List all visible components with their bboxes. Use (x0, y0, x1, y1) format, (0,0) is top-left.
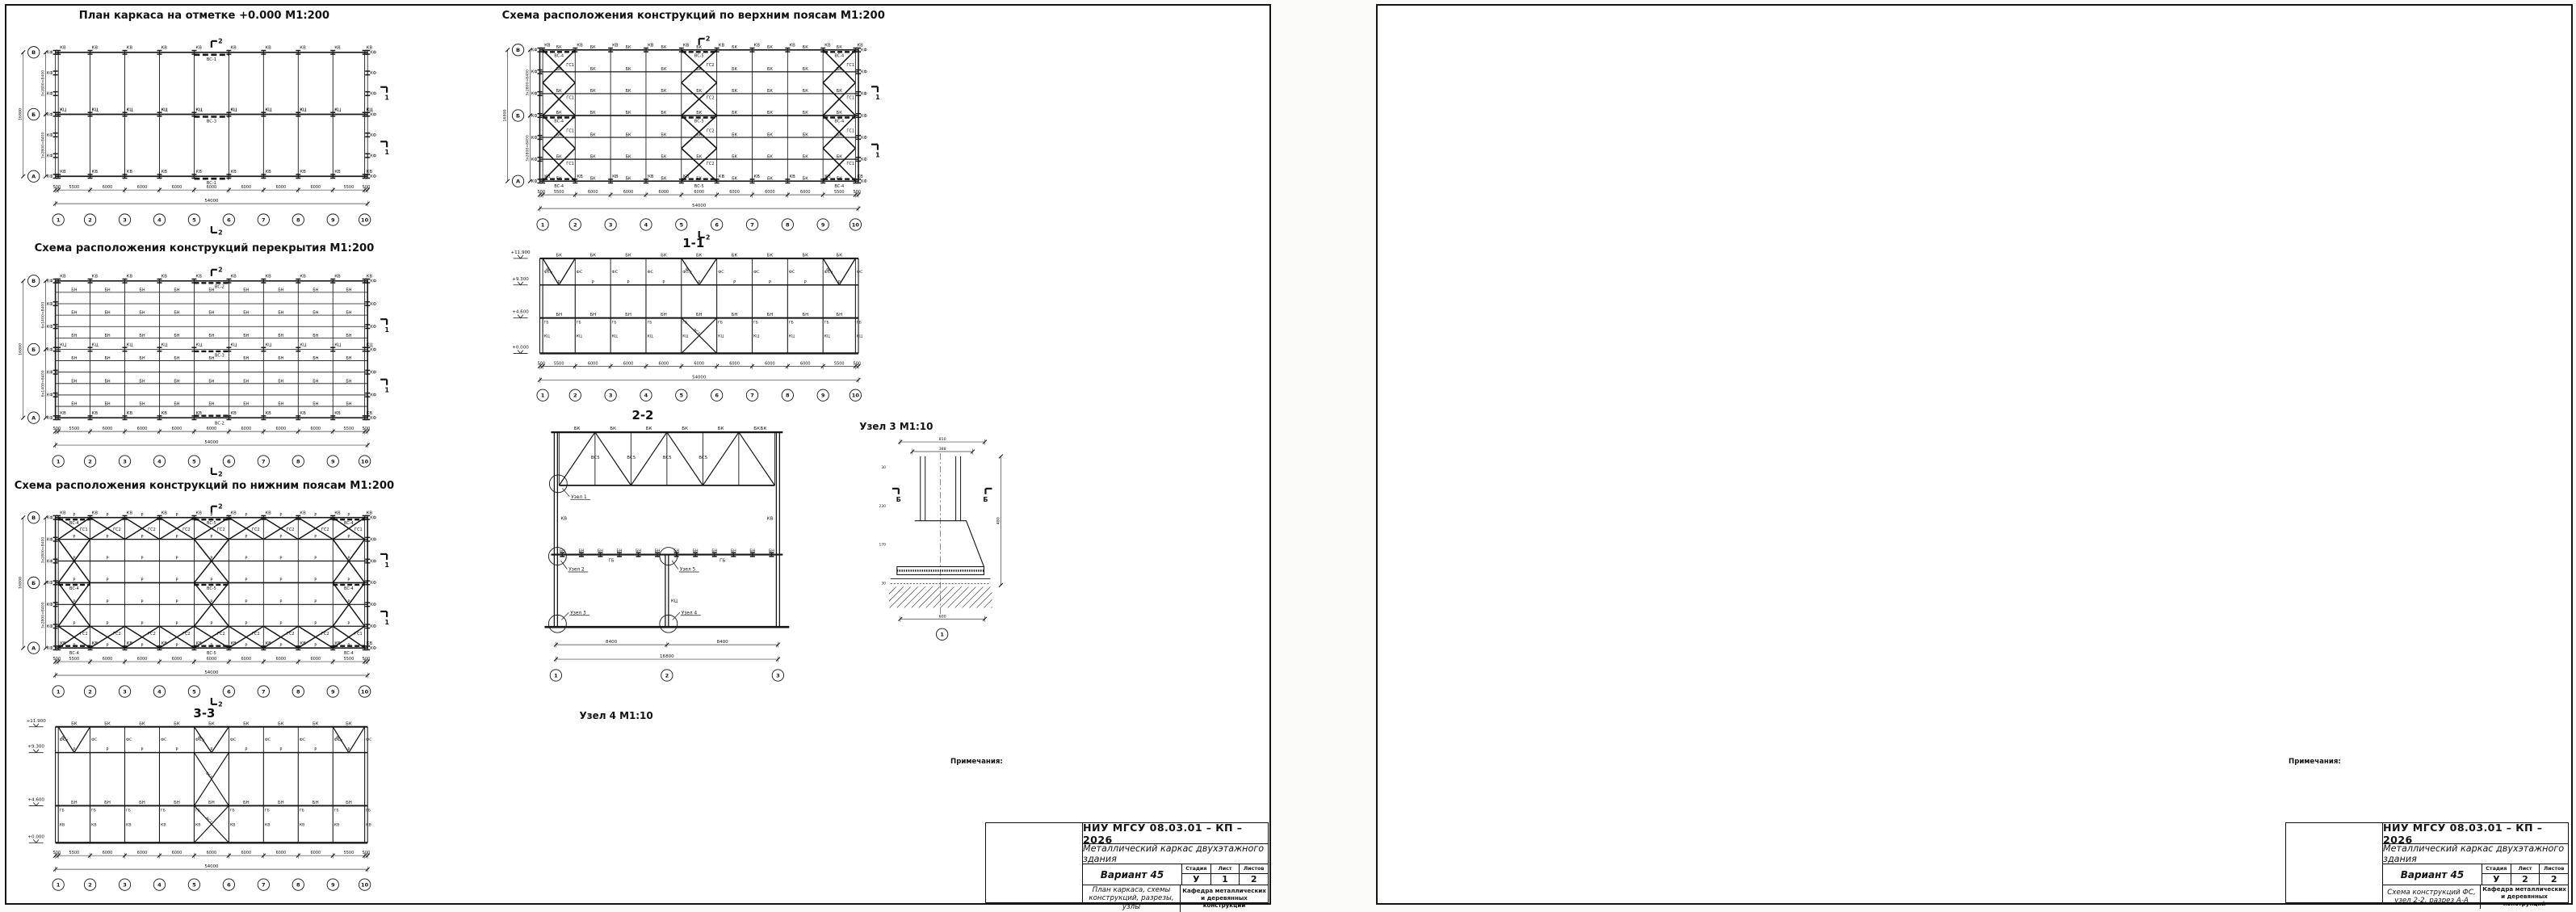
svg-text:Р: Р (245, 748, 247, 753)
svg-text:7: 7 (750, 393, 754, 399)
svg-text:БН: БН (278, 801, 284, 805)
svg-text:КЦ: КЦ (92, 343, 99, 347)
svg-text:3х2800=8400: 3х2800=8400 (41, 537, 46, 564)
svg-text:БН: БН (313, 379, 318, 384)
svg-text:БН: БН (243, 801, 250, 805)
svg-text:2: 2 (218, 37, 223, 44)
svg-text:1: 1 (384, 149, 389, 156)
svg-text:КВ: КВ (92, 46, 99, 51)
svg-text:КВ: КВ (648, 174, 654, 179)
svg-text:6000: 6000 (241, 851, 252, 855)
svg-text:КФ: КФ (47, 559, 53, 564)
project-title: Металлический каркас двухэтажного здания (1083, 844, 1268, 864)
svg-text:Р: Р (73, 578, 75, 583)
svg-text:КФ: КФ (370, 559, 376, 564)
svg-text:БН: БН (243, 379, 249, 384)
svg-text:10: 10 (361, 458, 369, 464)
svg-text:ГС1: ГС1 (566, 63, 574, 68)
svg-text:КФ: КФ (861, 70, 867, 75)
svg-text:КЦ: КЦ (334, 107, 341, 112)
svg-text:КФ: КФ (861, 92, 867, 97)
department-label: Кафедра металлических и деревянных конст… (2481, 885, 2568, 909)
svg-text:КЦ: КЦ (60, 343, 66, 347)
svg-text:КВ: КВ (195, 275, 202, 279)
svg-text:7: 7 (262, 881, 266, 888)
svg-text:6000: 6000 (241, 185, 252, 190)
svg-text:БК: БК (767, 89, 773, 94)
svg-text:ВС-4: ВС-4 (69, 586, 79, 591)
svg-text:Р: Р (175, 643, 178, 648)
svg-text:2: 2 (88, 216, 92, 223)
svg-text:Р: Р (733, 280, 736, 285)
svg-text:ГБ: ГБ (161, 808, 166, 813)
svg-text:КЦ: КЦ (300, 107, 306, 112)
svg-text:КВ: КВ (161, 511, 167, 516)
svg-text:БН: БН (208, 334, 214, 338)
svg-text:ФС: ФС (230, 738, 237, 742)
svg-text:Р: Р (279, 578, 282, 583)
svg-text:ВС-4: ВС-4 (834, 119, 844, 124)
svg-text:2: 2 (218, 700, 223, 708)
svg-text:КВ: КВ (230, 411, 237, 416)
svg-text:КЦ: КЦ (161, 343, 167, 347)
svg-text:КЦ: КЦ (265, 343, 271, 347)
svg-text:ГБ: ГБ (753, 321, 758, 326)
svg-text:ВС-4: ВС-4 (554, 53, 564, 58)
svg-text:БН: БН (278, 356, 283, 361)
svg-text:КВ: КВ (230, 275, 237, 279)
svg-text:КВ: КВ (60, 511, 66, 516)
svg-text:БК: БК (556, 89, 562, 94)
svg-text:6000: 6000 (172, 851, 183, 855)
svg-text:ГС2: ГС2 (252, 527, 260, 532)
svg-text:5500: 5500 (834, 190, 845, 195)
svg-text:БК: БК (556, 253, 562, 258)
svg-text:ГБ: ГБ (60, 808, 65, 813)
stage-value: У (2482, 874, 2511, 885)
page: { "page": {"background":"#fbfbfa","sheet… (0, 0, 2576, 910)
svg-text:БН: БН (208, 311, 214, 316)
svg-text:БК: БК (732, 132, 737, 137)
project-title: Металлический каркас двухэтажного здания (2383, 844, 2568, 864)
svg-text:БК: БК (590, 45, 596, 50)
svg-text:ГБ: ГБ (544, 321, 549, 326)
svg-text:БН: БН (104, 402, 110, 407)
svg-text:БК: БК (626, 132, 631, 137)
svg-text:Б: Б (31, 580, 36, 586)
svg-text:БК: БК (139, 721, 145, 726)
svg-text:БН: БН (104, 334, 110, 338)
svg-text:КФ: КФ (370, 581, 376, 586)
svg-text:КФ: КФ (370, 112, 376, 117)
svg-text:9: 9 (821, 221, 825, 228)
svg-text:3: 3 (123, 881, 127, 888)
svg-text:6х1400=8400: 6х1400=8400 (41, 370, 46, 397)
svg-text:500: 500 (363, 851, 370, 855)
svg-text:ВС5: ВС5 (663, 456, 672, 460)
svg-text:Р: Р (210, 535, 212, 540)
svg-text:6000: 6000 (729, 190, 740, 195)
svg-text:КВ: КВ (195, 170, 202, 174)
svg-text:Р: Р (314, 643, 317, 648)
svg-text:500: 500 (538, 190, 545, 195)
svg-text:ГС1: ГС1 (566, 96, 574, 101)
svg-text:БК: БК (767, 67, 773, 72)
svg-text:6000: 6000 (137, 657, 148, 662)
svg-text:Р: Р (73, 513, 75, 518)
svg-text:1: 1 (384, 95, 389, 102)
svg-text:Р: Р (662, 280, 665, 285)
svg-text:КФ: КФ (47, 279, 53, 284)
svg-text:Р: Р (141, 557, 143, 561)
svg-text:500: 500 (853, 190, 860, 195)
svg-text:БК: БК (625, 253, 631, 258)
svg-text:ГБ: ГБ (857, 321, 862, 326)
svg-text:ФС: ФС (577, 270, 583, 275)
svg-text:ГС2: ГС2 (113, 632, 121, 637)
svg-text:10: 10 (852, 393, 860, 399)
svg-text:БН: БН (578, 548, 584, 553)
svg-text:54000: 54000 (692, 375, 707, 380)
svg-text:БК: БК (590, 132, 596, 137)
svg-text:ФС: ФС (753, 270, 760, 275)
svg-text:БК: БК (661, 45, 666, 50)
svg-text:16800: 16800 (19, 343, 23, 355)
variant-label: Вариант 45 (1083, 864, 1182, 885)
svg-text:6: 6 (715, 221, 719, 228)
svg-text:500: 500 (363, 657, 370, 662)
svg-text:КВ: КВ (230, 511, 237, 516)
svg-text:БК: БК (761, 427, 767, 431)
svg-text:7: 7 (750, 221, 754, 228)
svg-text:БН: БН (208, 801, 215, 805)
svg-text:Схема расположения конструкций: Схема расположения конструкций по верхни… (502, 10, 885, 22)
svg-text:Р: Р (279, 513, 282, 518)
svg-text:Р: Р (314, 535, 317, 540)
svg-text:БК: БК (718, 427, 724, 431)
svg-text:КВ: КВ (334, 275, 341, 279)
svg-text:БК: БК (837, 89, 842, 94)
svg-text:Б: Б (516, 112, 520, 119)
svg-text:БН: БН (104, 288, 110, 292)
svg-text:КВ: КВ (92, 411, 99, 416)
svg-text:ВС-5: ВС-5 (694, 53, 704, 58)
svg-text:8: 8 (296, 458, 300, 464)
svg-text:КВ: КВ (195, 511, 202, 516)
svg-text:БН: БН (589, 313, 596, 317)
svg-text:БК: БК (803, 154, 808, 159)
svg-text:3: 3 (609, 221, 613, 228)
svg-text:Р: Р (210, 578, 212, 583)
svg-text:КВ: КВ (789, 174, 795, 179)
svg-text:БН: БН (636, 548, 641, 553)
svg-text:16800: 16800 (19, 577, 23, 589)
svg-text:Р: Р (279, 748, 282, 753)
svg-text:Р: Р (141, 600, 143, 605)
svg-text:6000: 6000 (310, 185, 321, 190)
svg-text:КВ: КВ (127, 46, 133, 51)
svg-text:БК: БК (837, 253, 843, 258)
svg-text:ФС: ФС (91, 738, 98, 742)
svg-text:ГБ: ГБ (720, 559, 725, 564)
svg-text:+11.900: +11.900 (510, 250, 531, 255)
svg-text:КФ: КФ (370, 370, 376, 375)
svg-text:Р: Р (347, 578, 350, 583)
svg-text:БН: БН (313, 288, 318, 292)
svg-text:Р: Р (347, 513, 350, 518)
svg-text:КВ: КВ (265, 46, 271, 51)
svg-text:ГС1: ГС1 (80, 527, 88, 532)
svg-text:БН: БН (208, 379, 214, 384)
svg-text:БК: БК (802, 253, 808, 258)
svg-text:КФ: КФ (370, 537, 376, 542)
svg-text:БН: БН (243, 311, 249, 316)
svg-text:КЦ: КЦ (857, 334, 862, 339)
svg-text:БН: БН (802, 313, 808, 317)
svg-text:810: 810 (939, 437, 946, 442)
svg-text:КФ: КФ (370, 279, 376, 284)
svg-text:БН: БН (243, 334, 249, 338)
svg-text:КВ: КВ (60, 46, 66, 51)
svg-text:КВ: КВ (334, 822, 340, 827)
svg-text:Р: Р (107, 643, 109, 648)
svg-text:КФ: КФ (861, 179, 867, 184)
svg-text:БК: БК (590, 176, 596, 181)
svg-text:6000: 6000 (623, 190, 634, 195)
svg-text:КФ: КФ (47, 416, 53, 421)
svg-text:БН: БН (208, 356, 214, 361)
svg-text:КВ: КВ (127, 275, 133, 279)
svg-text:Р: Р (175, 513, 178, 518)
svg-text:Р: Р (245, 621, 247, 626)
svg-text:БН: БН (104, 379, 110, 384)
svg-text:3х2800=8400: 3х2800=8400 (41, 70, 46, 97)
svg-text:КФ: КФ (370, 603, 376, 607)
svg-text:БН: БН (693, 548, 699, 553)
svg-text:9: 9 (331, 881, 335, 888)
svg-text:+4.600: +4.600 (512, 310, 529, 315)
svg-text:БК: БК (626, 176, 631, 181)
svg-text:6: 6 (227, 216, 231, 223)
svg-text:9: 9 (331, 688, 335, 695)
svg-text:БН: БН (104, 311, 110, 316)
svg-text:ГС2: ГС2 (707, 63, 715, 68)
svg-text:КЦ: КЦ (647, 334, 652, 339)
svg-text:БН: БН (732, 313, 738, 317)
svg-text:ГС2: ГС2 (707, 162, 715, 166)
svg-text:6000: 6000 (275, 657, 286, 662)
svg-text:+0.000: +0.000 (27, 834, 44, 839)
svg-text:6000: 6000 (172, 185, 183, 190)
svg-text:ГБ: ГБ (612, 321, 617, 326)
svg-text:ГБ: ГБ (265, 808, 270, 813)
svg-text:КВ: КВ (92, 511, 99, 516)
svg-text:Р: Р (245, 535, 247, 540)
svg-text:БК: БК (556, 154, 562, 159)
svg-text:ВС-5: ВС-5 (694, 119, 704, 124)
svg-text:КЦ: КЦ (300, 343, 306, 347)
svg-text:БН: БН (278, 288, 283, 292)
svg-text:6: 6 (227, 881, 231, 888)
svg-text:КВ: КВ (195, 46, 202, 51)
svg-text:500: 500 (853, 361, 860, 366)
svg-text:БН: БН (71, 311, 77, 316)
svg-text:2: 2 (706, 233, 711, 241)
svg-text:БН: БН (769, 548, 774, 553)
svg-text:КВ: КВ (92, 170, 99, 174)
svg-text:Р: Р (592, 280, 594, 285)
svg-text:4: 4 (644, 393, 648, 399)
svg-text:ФС: ФС (265, 738, 271, 742)
svg-text:КЦ: КЦ (789, 334, 795, 339)
svg-text:6000: 6000 (588, 361, 598, 366)
svg-text:2: 2 (88, 688, 92, 695)
svg-text:БН: БН (174, 334, 179, 338)
svg-text:ГС2: ГС2 (183, 632, 191, 637)
svg-text:БН: БН (711, 548, 717, 553)
svg-text:Р: Р (175, 600, 178, 605)
svg-text:БК: БК (574, 427, 581, 431)
svg-text:КФ: КФ (370, 153, 376, 158)
svg-text:5: 5 (192, 881, 196, 888)
svg-text:Узел 3: Узел 3 (570, 611, 586, 616)
svg-text:КВ: КВ (300, 275, 306, 279)
svg-text:1: 1 (384, 387, 389, 394)
svg-text:500: 500 (538, 361, 545, 366)
svg-text:КВ: КВ (300, 411, 306, 416)
svg-text:ВС-2: ВС-2 (215, 422, 224, 427)
svg-text:КФ: КФ (370, 516, 376, 521)
svg-text:БК: БК (732, 253, 738, 258)
svg-text:6000: 6000 (310, 427, 321, 431)
svg-text:9: 9 (331, 458, 335, 464)
svg-text:1: 1 (384, 326, 389, 334)
svg-text:Р: Р (107, 557, 109, 561)
svg-text:8400: 8400 (717, 640, 729, 645)
svg-text:КВ: КВ (753, 44, 760, 48)
svg-text:БН: БН (346, 801, 352, 805)
svg-text:КФ: КФ (47, 112, 53, 117)
svg-text:Р: Р (314, 513, 317, 518)
svg-text:6000: 6000 (800, 361, 811, 366)
svg-text:КФ: КФ (47, 174, 53, 179)
svg-text:5: 5 (680, 221, 684, 228)
svg-text:БК: БК (104, 721, 111, 726)
svg-text:ГС1: ГС1 (846, 96, 854, 101)
svg-text:230: 230 (879, 504, 887, 509)
svg-text:2: 2 (665, 672, 669, 679)
svg-text:6000: 6000 (800, 190, 811, 195)
svg-text:Р: Р (175, 557, 178, 561)
svg-text:5500: 5500 (69, 657, 80, 662)
svg-text:500: 500 (53, 185, 61, 190)
svg-text:Р: Р (279, 535, 282, 540)
svg-text:Р: Р (314, 557, 317, 561)
svg-text:2: 2 (573, 221, 577, 228)
svg-text:КФ: КФ (531, 48, 538, 53)
sheet-value: 1 (1211, 874, 1240, 885)
svg-text:54000: 54000 (204, 199, 219, 204)
svg-text:ВС5: ВС5 (627, 456, 636, 460)
svg-text:9: 9 (821, 393, 825, 399)
svg-text:БК: БК (71, 721, 78, 726)
svg-text:КФ: КФ (861, 48, 867, 53)
svg-text:6000: 6000 (137, 185, 148, 190)
svg-text:Р: Р (314, 600, 317, 605)
revision-table (2286, 823, 2383, 902)
svg-text:БК: БК (590, 154, 596, 159)
svg-text:БН: БН (174, 311, 179, 316)
svg-text:БН: БН (313, 311, 318, 316)
svg-text:КЦ: КЦ (230, 107, 237, 112)
svg-text:2: 2 (218, 470, 223, 477)
svg-text:КФ: КФ (370, 92, 376, 97)
svg-text:КФ: КФ (861, 158, 867, 162)
svg-text:КФ: КФ (47, 347, 53, 352)
svg-text:БН: БН (598, 548, 603, 553)
svg-text:3-3: 3-3 (193, 706, 215, 721)
svg-text:КВ: КВ (300, 46, 306, 51)
svg-text:6000: 6000 (103, 657, 113, 662)
svg-text:КФ: КФ (47, 325, 53, 330)
svg-text:ГС2: ГС2 (252, 632, 260, 637)
svg-text:КЦ: КЦ (161, 107, 167, 112)
svg-text:ВС-4: ВС-4 (69, 651, 79, 656)
svg-text:Р: Р (314, 748, 317, 753)
svg-text:+9.300: +9.300 (512, 277, 529, 282)
svg-text:5500: 5500 (69, 185, 80, 190)
svg-text:БК: БК (732, 176, 737, 181)
svg-text:6000: 6000 (103, 185, 113, 190)
svg-text:КВ: КВ (195, 822, 201, 827)
svg-text:КВ: КВ (719, 44, 725, 48)
svg-text:ГБ: ГБ (334, 808, 339, 813)
svg-text:БК: БК (313, 721, 319, 726)
svg-text:КВ: КВ (91, 822, 97, 827)
svg-text:БН: БН (278, 311, 283, 316)
svg-text:5500: 5500 (344, 851, 355, 855)
svg-text:ФС: ФС (857, 270, 863, 275)
svg-text:ГБ: ГБ (195, 808, 200, 813)
svg-text:КВ: КВ (265, 170, 271, 174)
svg-text:КВ: КВ (334, 170, 341, 174)
svg-text:КЦ: КЦ (753, 334, 759, 339)
svg-text:3: 3 (776, 672, 780, 679)
svg-text:БК: БК (803, 176, 808, 181)
svg-text:БК: БК (243, 721, 250, 726)
svg-text:388: 388 (939, 447, 946, 452)
svg-text:КФ: КФ (861, 114, 867, 119)
title-block-2: НИУ МГСУ 08.03.01 – КП – 2026 Металличес… (2285, 822, 2569, 903)
svg-text:ФС: ФС (647, 270, 653, 275)
svg-text:ГБ: ГБ (230, 808, 235, 813)
svg-text:Р: Р (314, 621, 317, 626)
svg-text:КВ: КВ (60, 822, 65, 827)
svg-text:+4.600: +4.600 (27, 797, 44, 802)
svg-text:500: 500 (53, 657, 61, 662)
svg-text:КФ: КФ (531, 92, 538, 97)
svg-text:Р: Р (245, 643, 247, 648)
svg-text:4: 4 (157, 881, 162, 888)
svg-text:6000: 6000 (103, 427, 113, 431)
svg-text:5: 5 (192, 216, 196, 223)
svg-text:Узел 3 М1:10: Узел 3 М1:10 (859, 421, 933, 432)
svg-text:КФ: КФ (47, 51, 53, 56)
svg-text:Р: Р (107, 513, 109, 518)
svg-text:Схема расположения конструкций: Схема расположения конструкций перекрыти… (35, 242, 375, 254)
svg-text:БК: БК (661, 253, 667, 258)
svg-text:БК: БК (732, 111, 737, 116)
